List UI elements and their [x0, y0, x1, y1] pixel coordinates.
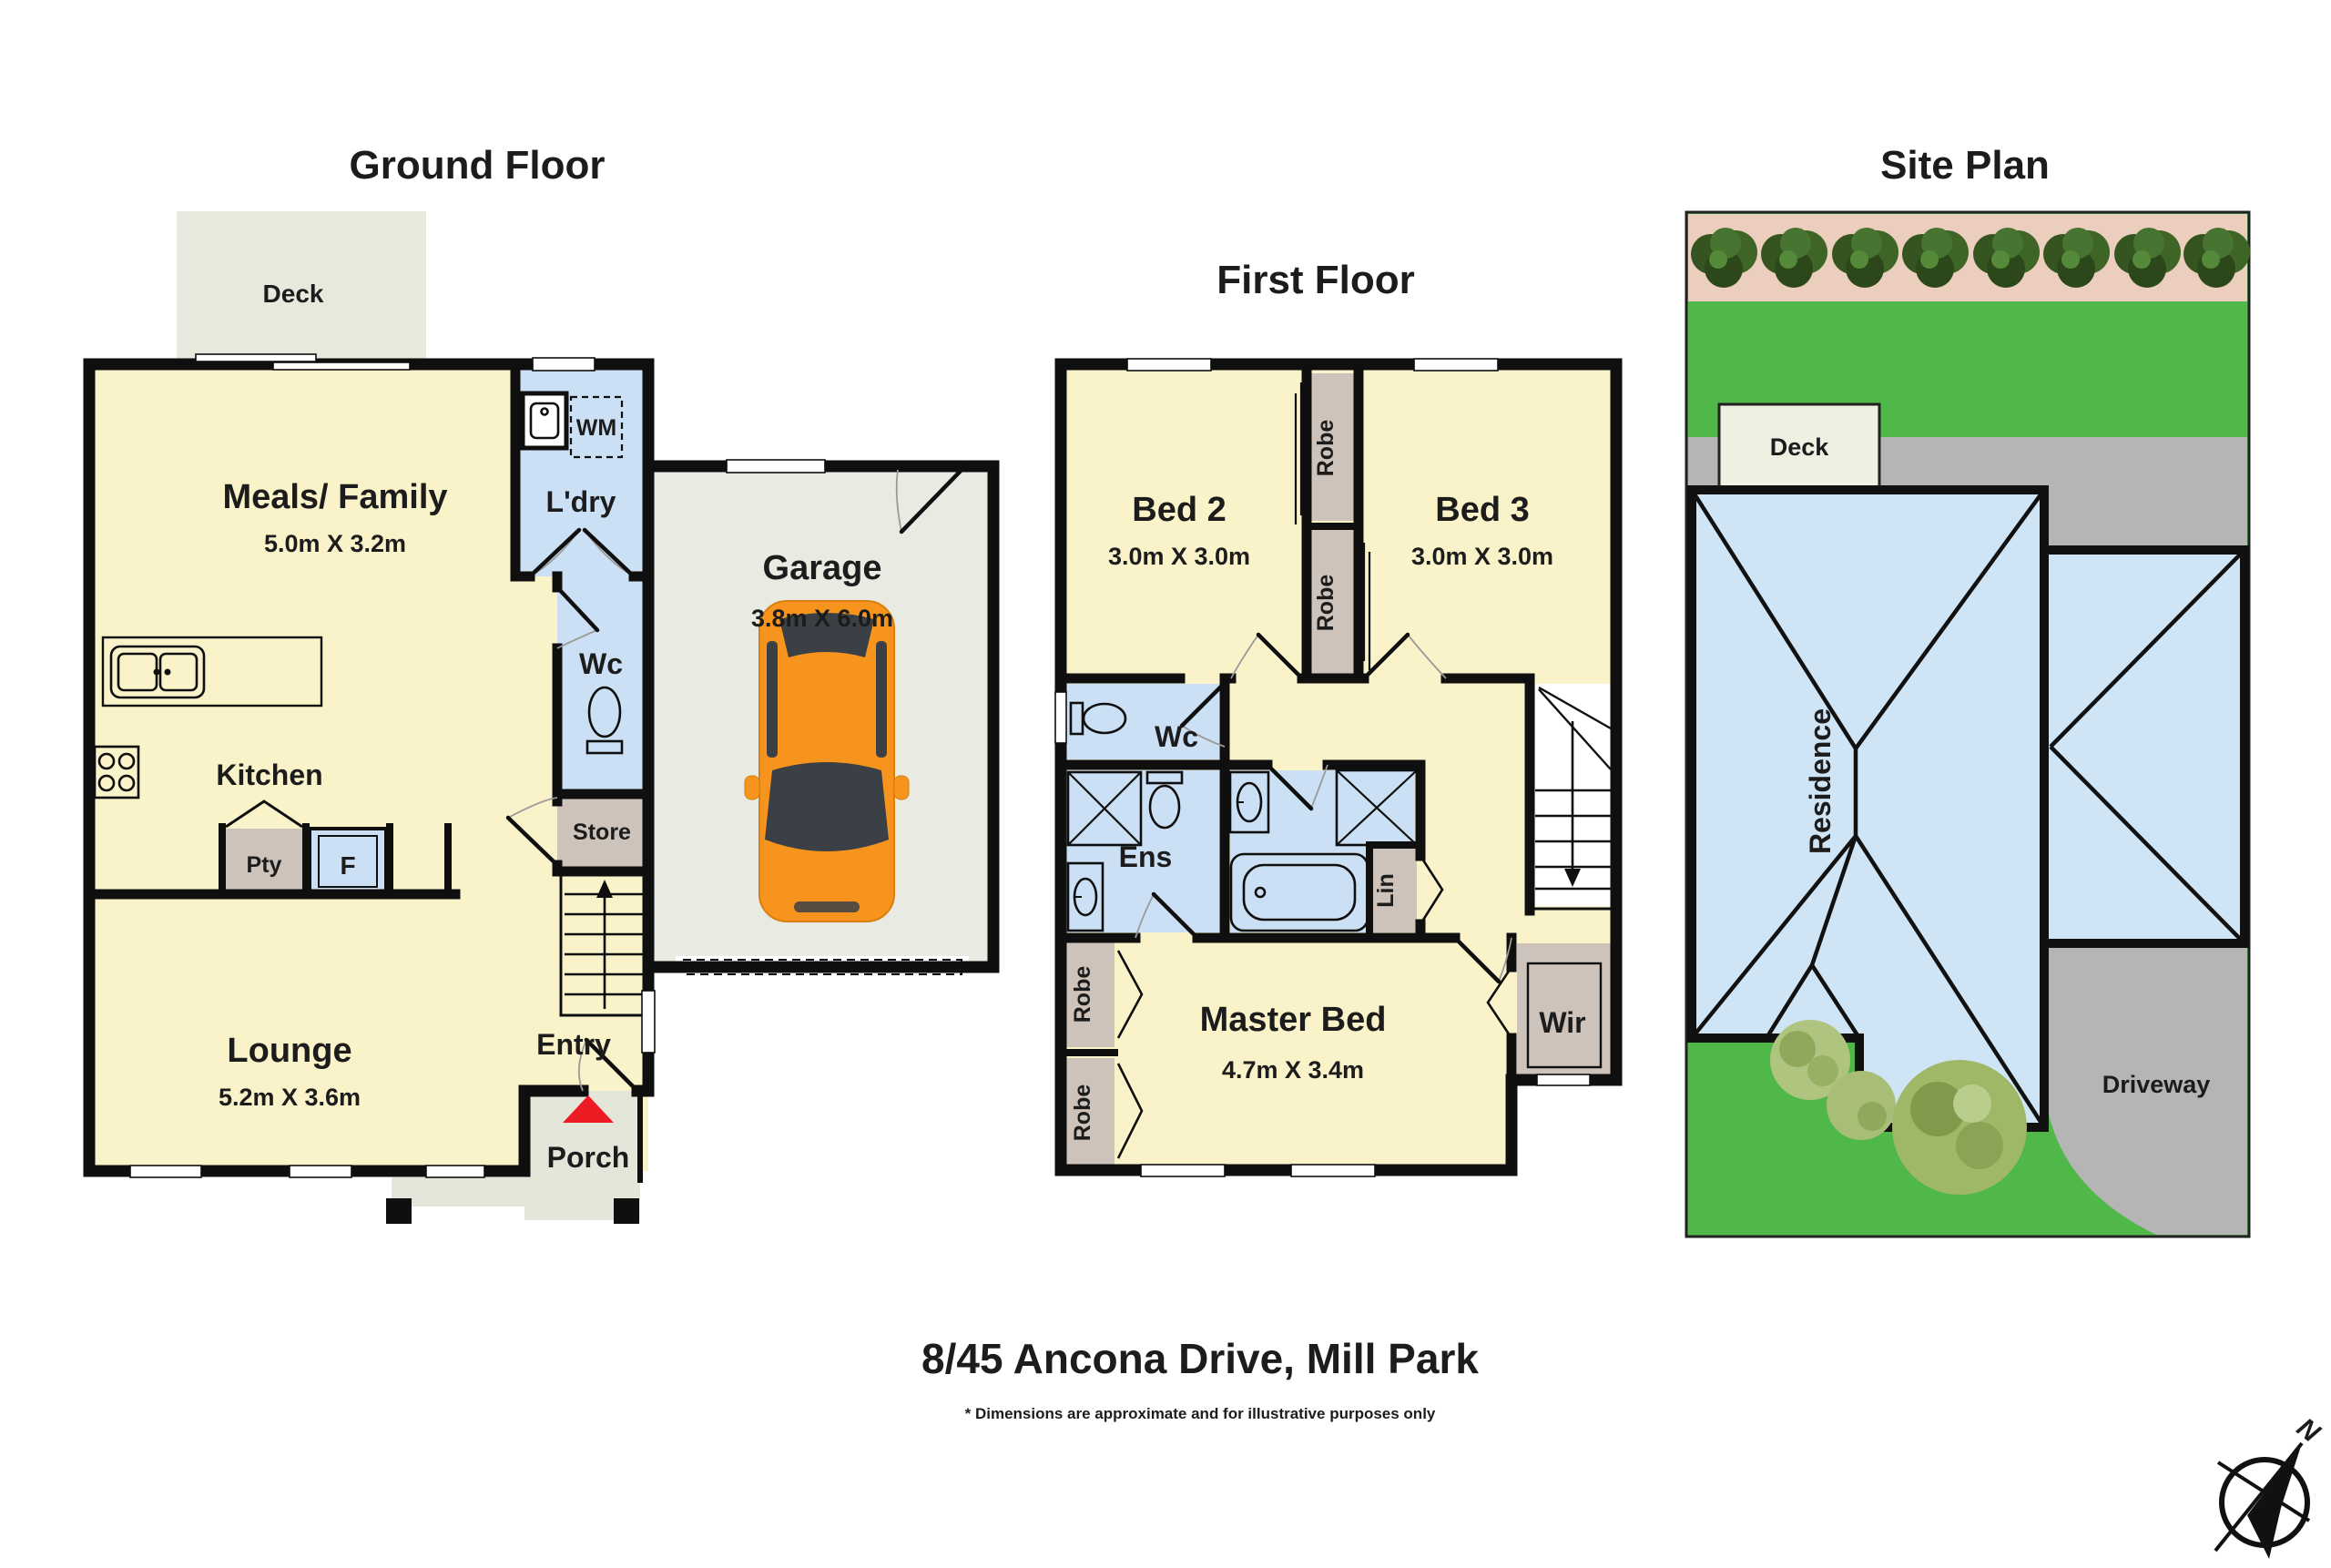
garage-roof	[2044, 550, 2244, 943]
porch-label: Porch	[547, 1141, 630, 1174]
compass-north-label: N	[2291, 1412, 2326, 1449]
window	[130, 1166, 201, 1177]
lounge-dims: 5.2m X 3.6m	[219, 1084, 361, 1111]
window	[533, 358, 595, 371]
first-floor-plan: First Floor	[1055, 258, 1616, 1176]
bed3-dims: 3.0m X 3.0m	[1411, 543, 1553, 570]
linen-label: Lin	[1373, 873, 1399, 908]
window	[642, 991, 655, 1053]
master-bed-label: Master Bed	[1200, 1001, 1387, 1039]
floorplan-page: Ground Floor	[0, 0, 2331, 1568]
window	[426, 1166, 484, 1177]
bed3-label: Bed 3	[1435, 491, 1529, 529]
meals-family-label: Meals/ Family	[222, 478, 447, 516]
lounge-label: Lounge	[227, 1032, 351, 1070]
window	[1291, 1165, 1375, 1176]
wc-ground-label: Wc	[579, 647, 623, 680]
robe-label: Robe	[1070, 966, 1095, 1023]
master-bed-dims: 4.7m X 3.4m	[1222, 1056, 1364, 1084]
window	[727, 460, 825, 473]
ground-floor-plan: Ground Floor	[89, 143, 993, 1224]
washing-machine-label: WM	[576, 415, 616, 441]
window	[1537, 1074, 1590, 1085]
robe-label: Robe	[1313, 420, 1339, 477]
driveway-label: Driveway	[2102, 1071, 2211, 1098]
disclaimer-note: * Dimensions are approximate and for ill…	[965, 1405, 1436, 1422]
bed2-label: Bed 2	[1132, 491, 1226, 529]
deck-label: Deck	[263, 280, 324, 308]
wir-label: Wir	[1539, 1006, 1585, 1039]
robe-label: Robe	[1313, 575, 1339, 632]
garage-dims: 3.8m X 6.0m	[751, 605, 893, 632]
floorplan-canvas: Ground Floor	[0, 0, 2331, 1568]
pantry-label: Pty	[247, 852, 282, 878]
bed2-dims: 3.0m X 3.0m	[1108, 543, 1250, 570]
window	[290, 1166, 351, 1177]
robe-label: Robe	[1070, 1084, 1095, 1142]
address-title: 8/45 Ancona Drive, Mill Park	[921, 1335, 1479, 1382]
ground-floor-title: Ground Floor	[349, 143, 605, 188]
first-floor-title: First Floor	[1216, 258, 1415, 302]
window	[1055, 692, 1066, 743]
sliding-door-panel	[196, 354, 316, 361]
residence-label: Residence	[1804, 708, 1837, 854]
wc-first-label: Wc	[1155, 720, 1198, 753]
residence-roof: Residence	[1692, 490, 2044, 1127]
sliding-door-panel	[273, 362, 410, 370]
fridge-label: F	[340, 851, 355, 880]
wc-area-ground	[557, 576, 648, 794]
meals-family-dims: 5.0m X 3.2m	[264, 530, 406, 557]
window	[1414, 359, 1498, 371]
porch-post-left	[386, 1198, 412, 1224]
laundry-label: L'dry	[546, 485, 616, 518]
car-icon	[745, 601, 909, 921]
compass-icon: N	[2215, 1412, 2326, 1559]
window	[1127, 359, 1211, 371]
site-plan-title: Site Plan	[1880, 143, 2050, 188]
ensuite-label: Ens	[1119, 840, 1173, 873]
kitchen-label: Kitchen	[216, 759, 322, 791]
garage-label: Garage	[763, 549, 882, 587]
store-label: Store	[573, 820, 631, 845]
site-deck-label: Deck	[1770, 433, 1830, 461]
laundry-sink-icon	[523, 393, 566, 448]
site-plan: Site Plan Deck Residence	[1686, 143, 2250, 1237]
porch-post-right	[614, 1198, 639, 1224]
window	[1141, 1165, 1225, 1176]
entry-label: Entry	[536, 1028, 611, 1061]
